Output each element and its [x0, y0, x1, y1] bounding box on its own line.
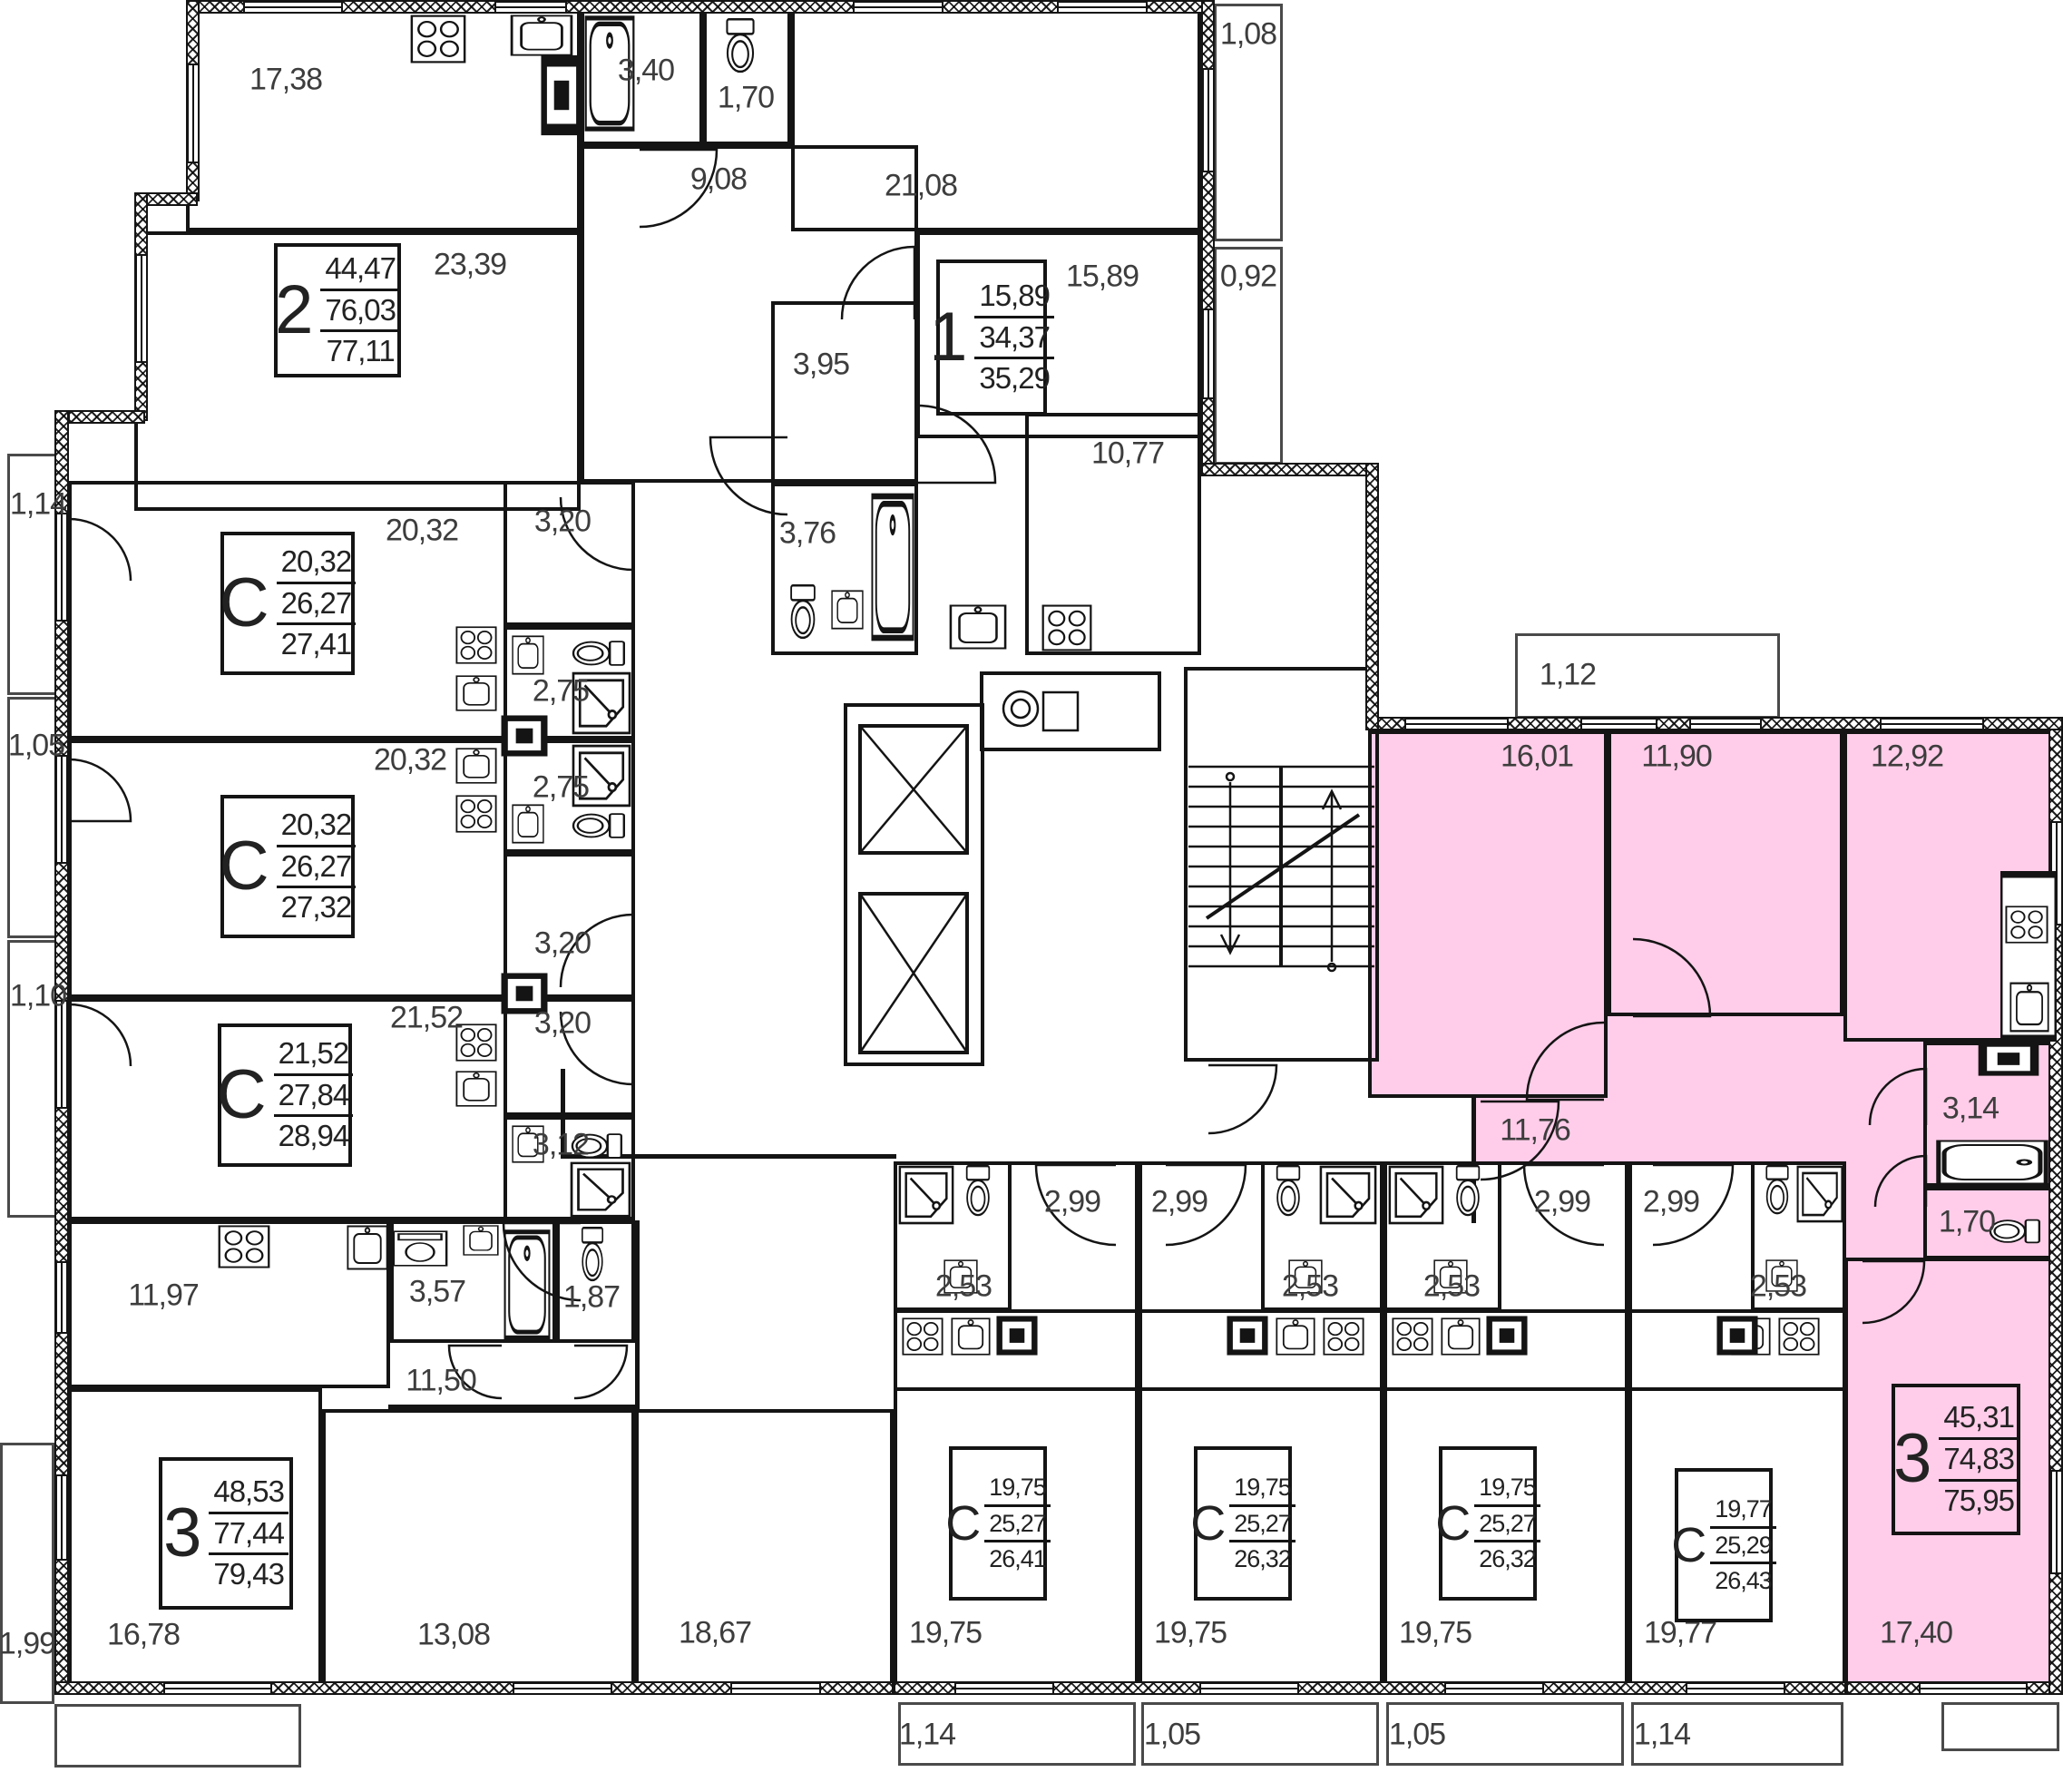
- apartment-type: C: [1190, 1502, 1226, 1546]
- area-label: 3,95: [793, 348, 849, 383]
- apartment-areas: 20,3226,2727,32: [277, 806, 357, 928]
- area-value: 15,89: [974, 277, 1054, 318]
- area-label: 10,77: [1091, 436, 1164, 472]
- apartment-areas: 15,8934,3735,29: [974, 277, 1054, 399]
- area-label: 3,57: [409, 1275, 465, 1310]
- area-value: 26,43: [1710, 1564, 1776, 1597]
- apartment-areas: 20,3226,2727,41: [277, 543, 357, 665]
- area-label: 2,75: [533, 770, 589, 806]
- area-value: 19,75: [1474, 1471, 1540, 1506]
- area-label: 17,38: [249, 63, 322, 98]
- area-label: 13,08: [417, 1618, 490, 1653]
- area-value: 28,94: [274, 1117, 354, 1156]
- area-value: 34,37: [974, 318, 1054, 360]
- area-value: 25,27: [1229, 1507, 1295, 1542]
- apartment-areas: 19,7725,2926,43: [1710, 1493, 1776, 1597]
- area-label: 1,08: [1220, 17, 1276, 53]
- apartment-type: C: [945, 1502, 981, 1546]
- area-label: 11,97: [128, 1278, 199, 1314]
- area-label: 17,40: [1880, 1616, 1952, 1651]
- area-label: 1,87: [563, 1280, 620, 1316]
- area-label: 1,70: [718, 81, 774, 116]
- apartment-stat-box: C20,3226,2727,32: [220, 795, 355, 938]
- apartment-type: 2: [275, 279, 313, 341]
- area-label: 3,20: [534, 926, 591, 962]
- area-label: 1,14: [899, 1718, 955, 1753]
- apartment-stat-box: 115,8934,3735,29: [936, 259, 1047, 416]
- area-value: 25,27: [984, 1507, 1051, 1542]
- area-label: 11,76: [1500, 1113, 1570, 1149]
- area-label: 15,89: [1066, 259, 1139, 295]
- area-label: 20,32: [374, 743, 446, 778]
- area-value: 48,53: [209, 1473, 288, 1514]
- area-label: 21,52: [390, 1001, 463, 1036]
- area-label: 19,75: [1154, 1616, 1227, 1651]
- apartment-areas: 48,5377,4479,43: [209, 1473, 288, 1595]
- area-value: 76,03: [320, 291, 400, 333]
- area-label: 12,92: [1871, 739, 1943, 775]
- area-value: 27,84: [274, 1076, 354, 1118]
- area-label: 21,08: [885, 169, 957, 204]
- area-label: 1,14: [1634, 1718, 1690, 1753]
- area-label: 1,05: [1389, 1718, 1445, 1753]
- area-label: 2,99: [1534, 1185, 1590, 1220]
- area-label: 3,14: [1942, 1092, 1999, 1127]
- area-value: 26,32: [1229, 1542, 1295, 1575]
- area-label: 1,10: [10, 979, 66, 1014]
- apartment-stat-box: 244,4776,0377,11: [274, 243, 401, 377]
- area-label: 16,01: [1501, 739, 1573, 775]
- area-label: 2,53: [1750, 1269, 1806, 1305]
- area-value: 25,27: [1474, 1507, 1540, 1542]
- area-label: 1,14: [10, 487, 66, 523]
- area-value: 45,31: [1939, 1398, 2019, 1440]
- area-label: 2,53: [1423, 1269, 1480, 1305]
- apartment-type: C: [220, 573, 269, 634]
- area-value: 26,27: [277, 584, 357, 626]
- apartment-stat-box: C19,7525,2726,32: [1439, 1446, 1537, 1601]
- apartment-stat-box: C19,7725,2926,43: [1675, 1468, 1773, 1622]
- area-value: 44,47: [320, 250, 400, 291]
- area-value: 35,29: [974, 359, 1054, 398]
- area-value: 19,77: [1710, 1493, 1776, 1528]
- apartment-stat-box: C19,7525,2726,32: [1194, 1446, 1292, 1601]
- area-label: 20,32: [386, 514, 458, 549]
- area-label: 1,12: [1540, 658, 1596, 693]
- apartment-stat-box: C19,7525,2726,41: [949, 1446, 1047, 1601]
- area-value: 26,41: [984, 1542, 1051, 1575]
- area-label: 18,67: [679, 1616, 751, 1651]
- area-label: 1,99: [0, 1627, 55, 1662]
- area-label: 3,76: [779, 516, 836, 552]
- area-value: 20,32: [277, 806, 357, 847]
- apartment-areas: 44,4776,0377,11: [320, 250, 400, 372]
- apartment-type: 3: [1893, 1428, 1931, 1490]
- area-value: 27,32: [277, 888, 357, 927]
- area-value: 20,32: [277, 543, 357, 584]
- apartment-areas: 19,7525,2726,41: [984, 1471, 1051, 1575]
- apartment-stat-box: C20,3226,2727,41: [220, 532, 355, 675]
- area-label: 11,90: [1641, 739, 1712, 775]
- apartment-type: C: [220, 836, 269, 897]
- apartment-areas: 19,7525,2726,32: [1229, 1471, 1295, 1575]
- area-label: 2,53: [935, 1269, 992, 1305]
- area-label: 16,78: [107, 1618, 180, 1653]
- apartment-stat-box: 348,5377,4479,43: [159, 1457, 293, 1610]
- area-value: 21,52: [274, 1034, 354, 1076]
- area-label: 0,92: [1220, 259, 1276, 295]
- apartment-stat-box: C21,5227,8428,94: [218, 1023, 352, 1167]
- area-label: 19,75: [1399, 1616, 1471, 1651]
- area-label: 2,99: [1044, 1185, 1100, 1220]
- area-label: 3,12: [533, 1128, 589, 1163]
- apartment-type: 3: [163, 1503, 201, 1564]
- apartment-type: C: [1671, 1523, 1706, 1568]
- area-value: 75,95: [1939, 1482, 2019, 1521]
- area-label: 3,40: [618, 54, 674, 89]
- area-label: 3,20: [534, 1006, 591, 1042]
- area-label: 2,53: [1282, 1269, 1338, 1305]
- area-value: 79,43: [209, 1555, 288, 1594]
- area-value: 26,32: [1474, 1542, 1540, 1575]
- area-value: 77,11: [322, 332, 399, 371]
- area-value: 25,29: [1710, 1529, 1776, 1564]
- area-label: 2,99: [1151, 1185, 1207, 1220]
- area-value: 19,75: [1229, 1471, 1295, 1506]
- area-label: 11,50: [406, 1364, 476, 1399]
- apartment-type: 1: [929, 307, 967, 368]
- area-value: 26,27: [277, 847, 357, 889]
- apartment-areas: 19,7525,2726,32: [1474, 1471, 1540, 1575]
- apartment-type: C: [217, 1064, 267, 1126]
- area-label: 19,75: [909, 1616, 982, 1651]
- area-value: 74,83: [1939, 1440, 2019, 1482]
- apartment-areas: 21,5227,8428,94: [274, 1034, 354, 1157]
- area-label: 23,39: [434, 248, 506, 283]
- area-label: 3,20: [534, 504, 591, 540]
- area-label: 1,05: [1144, 1718, 1200, 1753]
- area-label: 1,05: [8, 729, 64, 764]
- area-label: 2,75: [533, 674, 589, 710]
- apartment-stat-box: 345,3174,8375,95: [1892, 1384, 2020, 1535]
- area-value: 19,75: [984, 1471, 1051, 1506]
- floor-plan: 17,383,401,709,0821,0823,3915,891,080,92…: [0, 0, 2063, 1792]
- area-label: 2,99: [1643, 1185, 1699, 1220]
- area-value: 77,44: [209, 1514, 288, 1556]
- area-label: 1,70: [1939, 1205, 1995, 1240]
- area-value: 27,41: [277, 625, 357, 664]
- apartment-type: C: [1435, 1502, 1471, 1546]
- area-label: 9,08: [690, 162, 747, 198]
- apartment-areas: 45,3174,8375,95: [1939, 1398, 2019, 1521]
